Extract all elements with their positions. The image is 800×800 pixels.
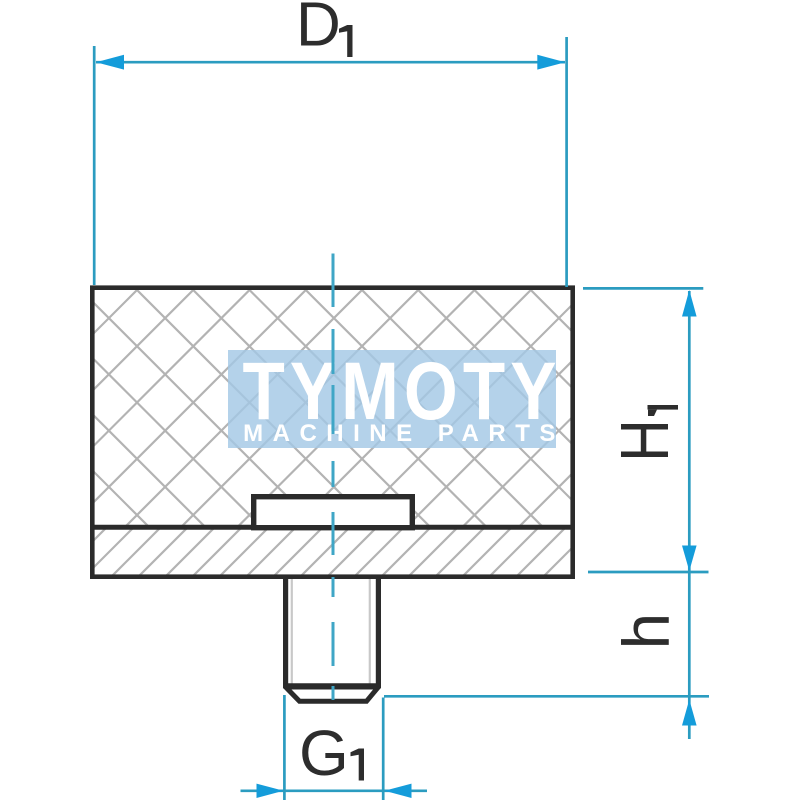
svg-text:D: D [296,0,341,60]
svg-text:h: h [609,613,683,650]
svg-text:MACHINE PARTS: MACHINE PARTS [243,420,565,447]
svg-text:G: G [299,717,349,789]
